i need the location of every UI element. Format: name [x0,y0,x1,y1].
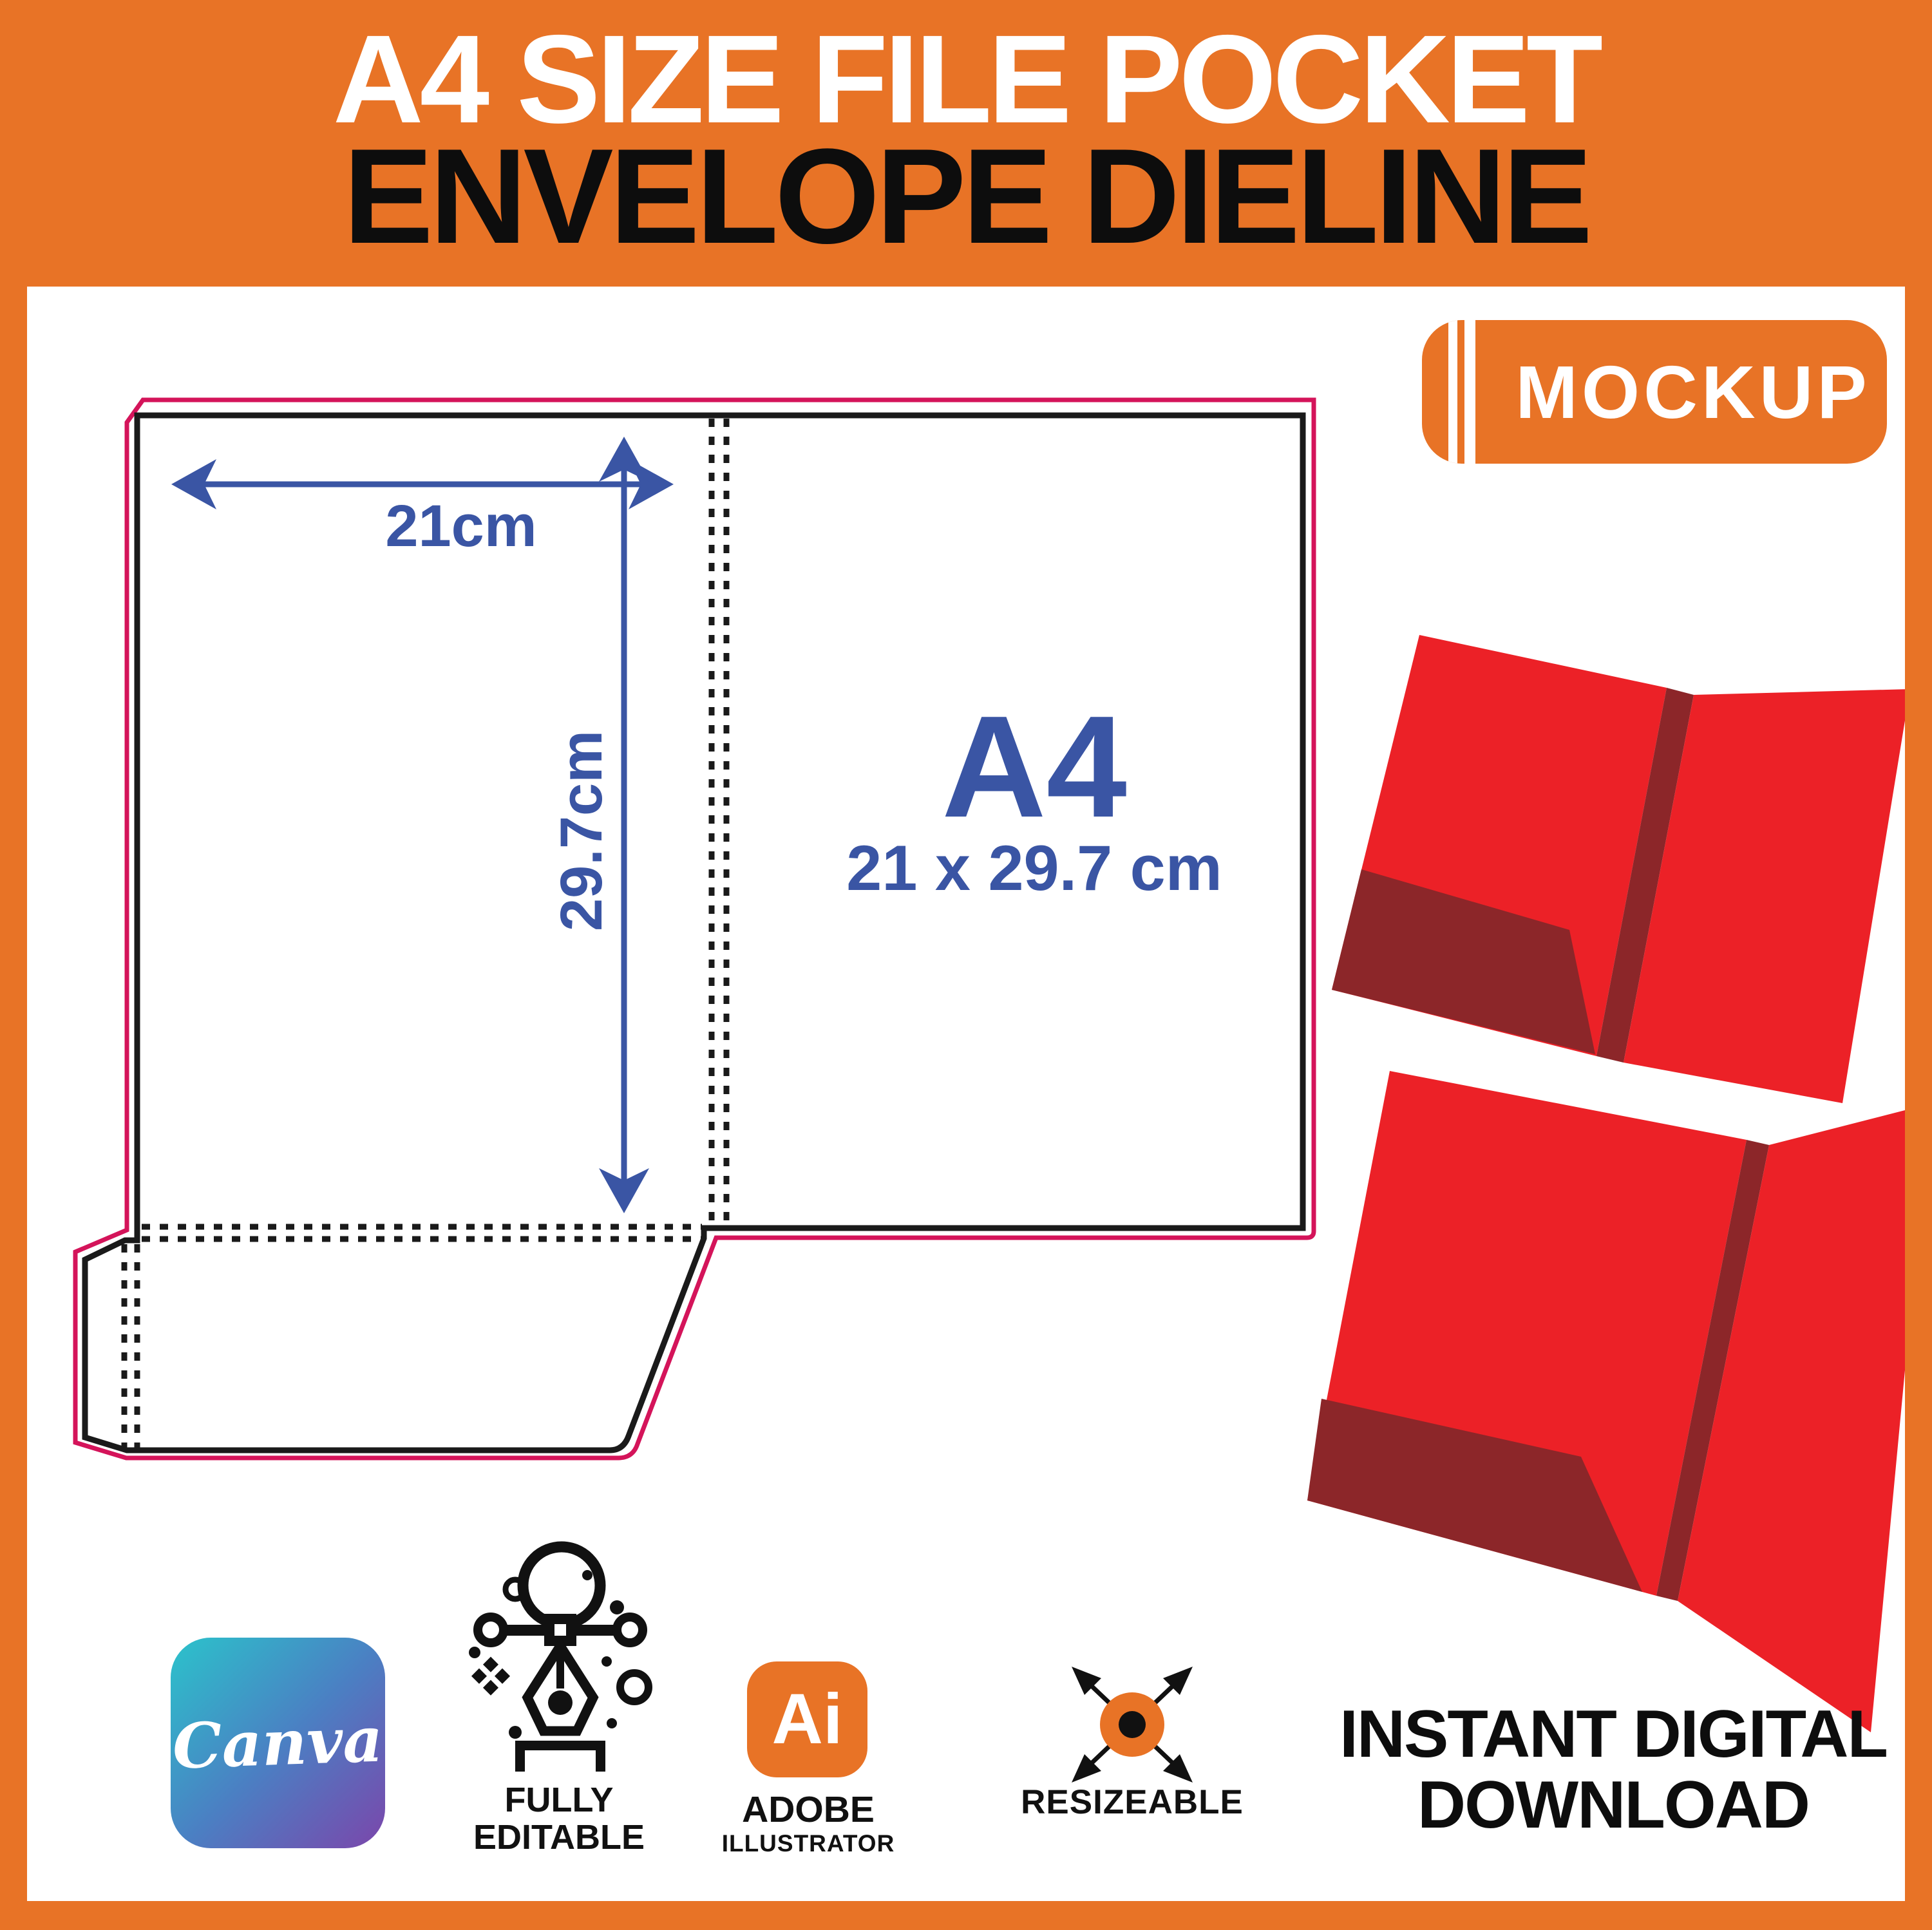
adobe-line1: ADOBE [712,1790,905,1829]
instant-download-caption: INSTANT DIGITAL DOWNLOAD [1314,1699,1913,1840]
paper-dimensions-label: 21 x 29.7 cm [846,832,1222,904]
height-dimension-label: 29.7cm [549,730,614,931]
resize-arrows-icon [1072,1667,1193,1783]
adobe-illustrator-icon: Ai [747,1661,867,1777]
canva-logo: Canva [171,1638,385,1848]
folder-mockups [1307,635,1930,1732]
dieline-diagram: 21cm 29.7cm A4 21 x 29.7 cm [75,400,1314,1458]
paper-size-label: A4 [942,685,1127,847]
fully-editable-line2: EDITABLE [450,1819,668,1856]
fully-editable-line1: FULLY [450,1781,668,1819]
product-poster: A4 SIZE FILE POCKET ENVELOPE DIELINE MOC… [0,0,1932,1930]
resizeable-label: RESIZEABLE [1003,1783,1261,1822]
folder-mockup-bottom [1307,1071,1930,1732]
pen-tool-icon [469,1547,649,1772]
adobe-caption: ADOBE ILLUSTRATOR [712,1790,905,1859]
fully-editable-caption: FULLY EDITABLE [450,1781,668,1856]
width-dimension-label: 21cm [385,493,536,559]
instant-download-line2: DOWNLOAD [1314,1770,1913,1840]
canva-logo-label: Canva [172,1708,384,1777]
adobe-illustrator-icon-label: Ai [772,1684,843,1755]
folder-mockup-top [1332,635,1910,1103]
instant-download-line1: INSTANT DIGITAL [1314,1699,1913,1770]
adobe-line2: ILLUSTRATOR [712,1829,905,1859]
